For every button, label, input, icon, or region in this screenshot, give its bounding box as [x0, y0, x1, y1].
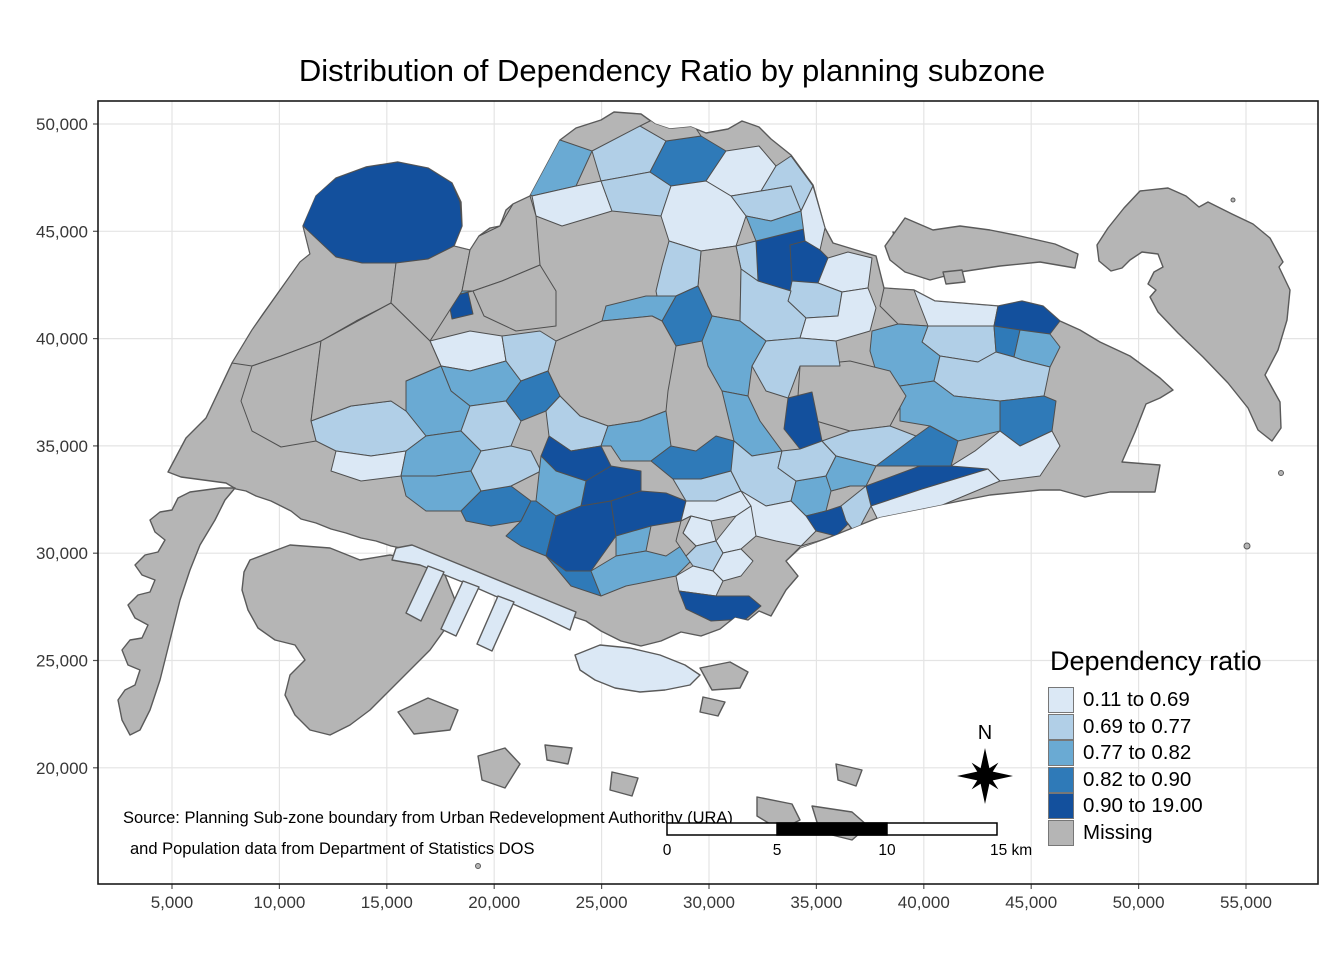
scale-bar-graphic [660, 816, 1040, 840]
source-line-2: and Population data from Department of S… [123, 834, 733, 865]
y-tick-label: 40,000 [36, 330, 88, 349]
x-tick-label: 35,000 [790, 893, 842, 912]
islet-dot [476, 864, 481, 869]
x-tick-label: 25,000 [576, 893, 628, 912]
x-tick-label: 10,000 [253, 893, 305, 912]
x-tick-label: 20,000 [468, 893, 520, 912]
scale-label-15km: 15 km [990, 842, 1032, 860]
x-tick-label: 15,000 [361, 893, 413, 912]
y-tick-label: 25,000 [36, 652, 88, 671]
x-tick-label: 50,000 [1113, 893, 1165, 912]
legend-row: 0.69 to 0.77 [1048, 714, 1262, 741]
legend-row: 0.82 to 0.90 [1048, 767, 1262, 794]
north-label: N [950, 722, 1020, 745]
source-line-1: Source: Planning Sub-zone boundary from … [123, 803, 733, 834]
y-tick-label: 20,000 [36, 759, 88, 778]
islet-dot [1279, 471, 1284, 476]
legend-items: 0.11 to 0.690.69 to 0.770.77 to 0.820.82… [1048, 687, 1262, 846]
y-tick-label: 30,000 [36, 544, 88, 563]
legend-label: 0.11 to 0.69 [1083, 688, 1190, 712]
y-tick-label: 45,000 [36, 222, 88, 241]
scale-label-10: 10 [878, 842, 895, 860]
legend: Dependency ratio 0.11 to 0.690.69 to 0.7… [1048, 646, 1262, 846]
source-caption: Source: Planning Sub-zone boundary from … [123, 803, 733, 864]
y-tick-label: 50,000 [36, 115, 88, 134]
legend-swatch-2 [1048, 740, 1074, 766]
legend-title: Dependency ratio [1050, 646, 1262, 677]
legend-swatch-0 [1048, 687, 1074, 713]
legend-swatch-3 [1048, 767, 1074, 793]
legend-label: Missing [1083, 821, 1153, 845]
x-tick-label: 30,000 [683, 893, 735, 912]
island-ubin-islet [943, 270, 965, 284]
legend-swatch-5 [1048, 820, 1074, 846]
y-tick-label: 35,000 [36, 437, 88, 456]
figure: Distribution of Dependency Ratio by plan… [0, 0, 1344, 960]
legend-swatch-1 [1048, 714, 1074, 740]
x-tick-label: 40,000 [898, 893, 950, 912]
legend-row: Missing [1048, 820, 1262, 847]
legend-label: 0.90 to 19.00 [1083, 794, 1203, 818]
legend-row: 0.77 to 0.82 [1048, 740, 1262, 767]
scale-label-0: 0 [663, 842, 672, 860]
legend-label: 0.82 to 0.90 [1083, 768, 1191, 792]
legend-row: 0.90 to 19.00 [1048, 793, 1262, 820]
islet-dot [1231, 198, 1235, 202]
scale-bar: 0 5 10 15 km [660, 816, 1040, 862]
legend-label: 0.77 to 0.82 [1083, 741, 1191, 765]
north-arrow: N [950, 722, 1020, 804]
x-tick-label: 55,000 [1220, 893, 1272, 912]
legend-row: 0.11 to 0.69 [1048, 687, 1262, 714]
scale-label-5: 5 [773, 842, 782, 860]
islet-dot [1244, 543, 1250, 549]
x-tick-label: 45,000 [1005, 893, 1057, 912]
legend-swatch-4 [1048, 793, 1074, 819]
x-tick-label: 5,000 [151, 893, 194, 912]
legend-label: 0.69 to 0.77 [1083, 715, 1191, 739]
